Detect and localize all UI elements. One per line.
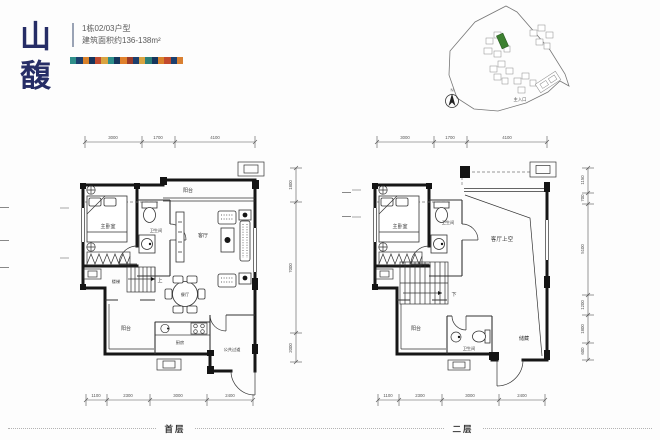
dim-stub	[0, 267, 9, 268]
dim-label: 5100	[580, 244, 585, 254]
dim-label: 1200	[580, 300, 585, 310]
dim-stub	[342, 216, 351, 217]
dim-stub	[0, 207, 9, 208]
room-label-master-bedroom: 主卧室	[392, 223, 407, 230]
dim-label: 4100	[210, 135, 220, 140]
room-label-bathroom: 卫生间	[150, 227, 163, 234]
dim-stub	[0, 240, 9, 241]
title-block: 1栋02/03户型 建筑面积约136-138m²	[72, 23, 161, 47]
sink-icon	[139, 235, 155, 253]
room-label-master-bedroom: 主卧室	[100, 223, 115, 230]
stairs-down-label: 下	[451, 292, 456, 298]
dim-label: 1100	[91, 393, 101, 398]
room-label-living-void: 客厅上空	[491, 235, 514, 243]
floor1-plan: 3000 1700 4100 1800 7000 2000 1100 2300 …	[60, 128, 310, 413]
site-buildings	[484, 25, 561, 93]
dim-label: 3000	[173, 393, 183, 398]
toilet-icon	[142, 202, 157, 223]
room-label-stairs: 楼梯	[112, 278, 120, 285]
north-label: N	[450, 88, 453, 93]
stairs-icon	[400, 262, 448, 304]
ground-line	[8, 428, 652, 429]
dim-label: 2000	[288, 343, 293, 353]
bed-icon	[379, 186, 419, 251]
plan-title: 1栋02/03户型	[82, 23, 161, 35]
sink-icon	[451, 332, 461, 342]
wardrobe-icon	[379, 252, 422, 265]
tv-cabinet-icon	[176, 212, 184, 262]
room-label-balcony-top: 阳台	[183, 187, 193, 194]
plan-area-text: 建筑面积约136-138m²	[82, 35, 161, 47]
room-label-storage: 储藏	[519, 335, 529, 342]
room-label-bathroom: 卫生间	[442, 219, 455, 226]
floor2-name: 二层	[444, 423, 482, 435]
dim-label: 2400	[225, 393, 235, 398]
room-label-balcony-bottom: 阳台	[121, 325, 131, 332]
dim-label: 2300	[415, 393, 425, 398]
room-label-corridor: 公共过道	[224, 346, 242, 353]
room-label-kitchen: 厨房	[176, 339, 184, 346]
main-entrance-label: 主入口	[514, 96, 527, 102]
room-label-dining: 餐厅	[181, 291, 189, 298]
dim-label: 1700	[153, 135, 163, 140]
site-plan: N 主入口	[438, 2, 650, 126]
dim-label: 2300	[123, 393, 133, 398]
stairs-icon	[127, 267, 155, 292]
sink-icon	[431, 235, 447, 253]
logo-shanfu: 山馥	[10, 20, 55, 98]
dim-label: 1150	[580, 175, 585, 185]
floor1-name: 首层	[156, 423, 194, 435]
decor-strip	[70, 57, 183, 64]
site-boundary	[449, 6, 569, 111]
room-label-bathroom2: 卫生间	[463, 345, 476, 352]
floor2-plan: 3000 1700 4100 1150 700 5100 1200 1800 6…	[352, 128, 602, 413]
dim-label: 1700	[445, 135, 455, 140]
toilet-icon	[473, 330, 491, 343]
dim-label: 3000	[465, 393, 475, 398]
dim-label: 600	[580, 347, 585, 355]
bed-icon	[87, 186, 127, 251]
floor2-doors	[411, 224, 523, 386]
room-label-living: 客厅	[198, 232, 208, 239]
dim-stub	[342, 192, 351, 193]
dim-label: 2400	[517, 393, 527, 398]
dim-label: 1800	[288, 180, 293, 190]
dim-label: 1800	[580, 324, 585, 334]
wardrobe-icon	[87, 252, 130, 265]
stairs-up-label: 上	[157, 277, 162, 284]
room-label-balcony: 阳台	[411, 325, 421, 332]
coffee-table-icon	[221, 228, 234, 252]
dim-label: 3000	[400, 135, 410, 140]
dim-label: 700	[580, 194, 585, 202]
floor2-walls	[372, 166, 550, 360]
dim-label: 4100	[502, 135, 512, 140]
dim-label: 3000	[108, 135, 118, 140]
dim-label: 7000	[288, 263, 293, 273]
kitchen-counter-icon	[155, 322, 210, 335]
site-highlight-building	[496, 33, 508, 49]
dim-label: 1100	[383, 393, 393, 398]
page: 山馥 1栋02/03户型 建筑面积约136-138m²	[0, 0, 660, 440]
